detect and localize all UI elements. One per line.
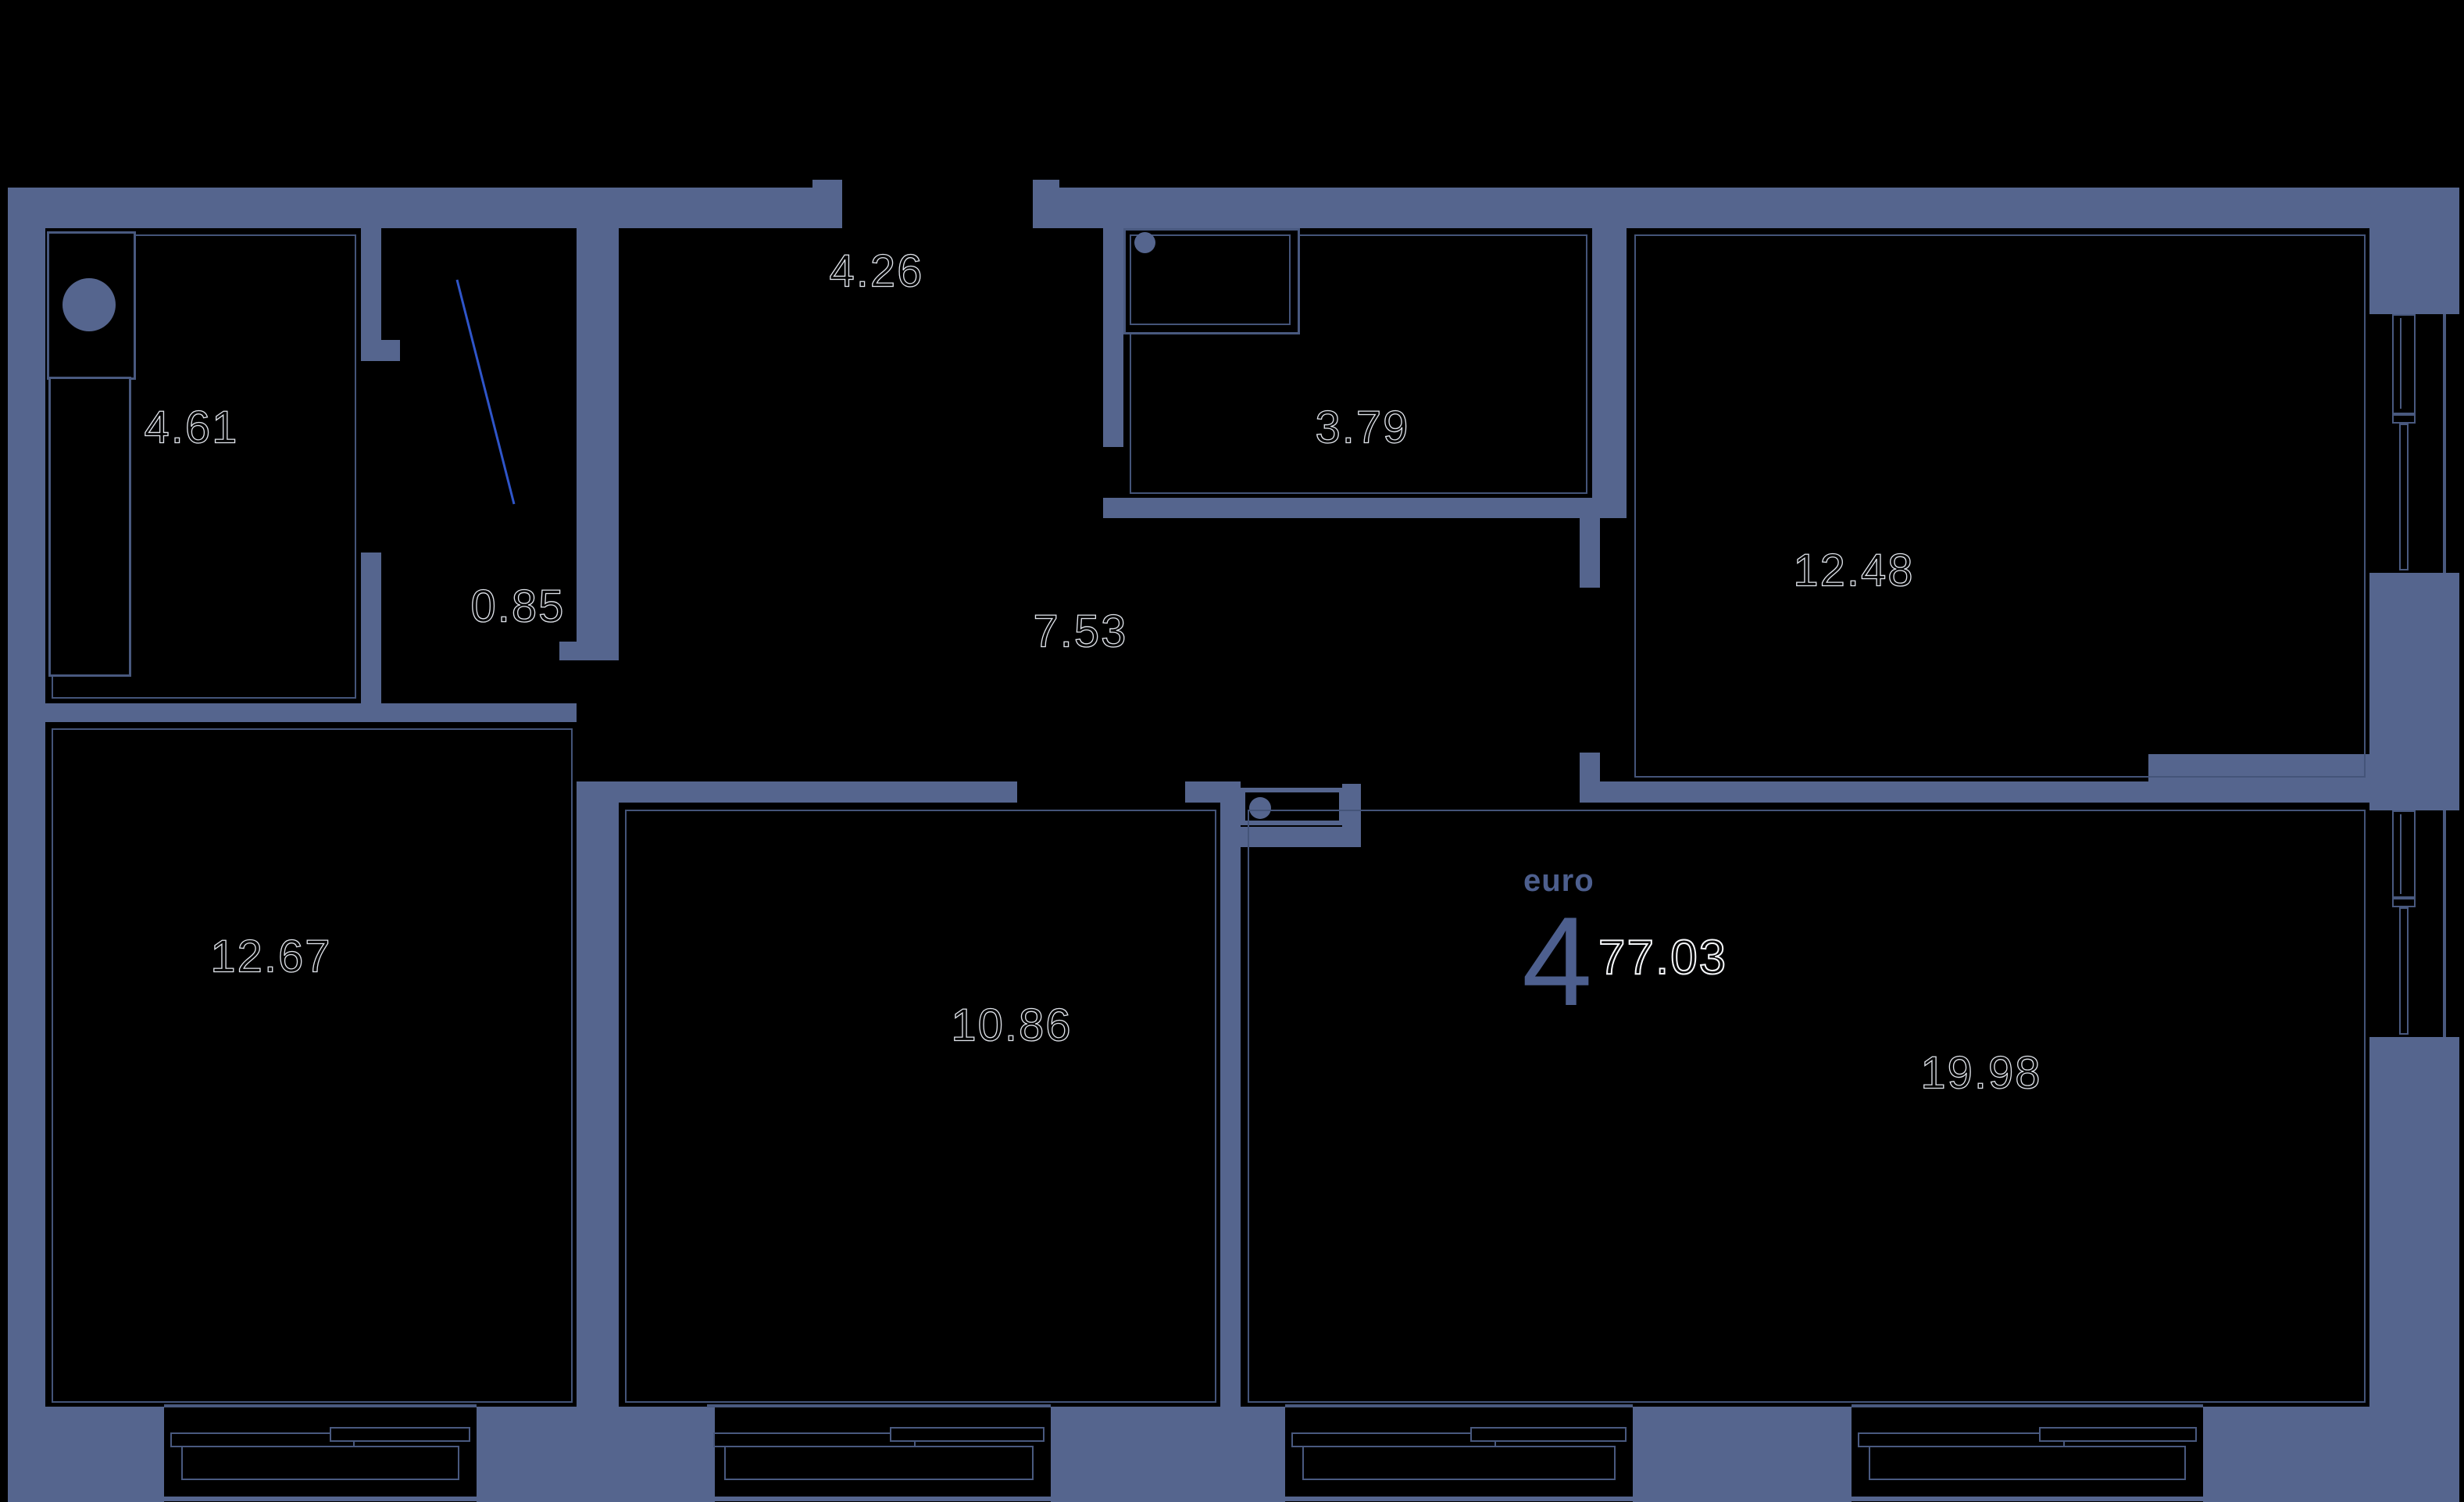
- wall-face-line: [707, 1404, 1051, 1407]
- wall-segment: [812, 180, 842, 189]
- window-right-upper: [2387, 314, 2450, 573]
- window-sash: [330, 1427, 470, 1442]
- wall-segment: [1033, 188, 2459, 228]
- window-glass-line: [2399, 907, 2409, 1035]
- room-area-label-bedroom-3: 10.86: [951, 1000, 1072, 1052]
- wall-segment: [1103, 228, 1123, 447]
- room-area-label-bathroom: 4.61: [145, 402, 239, 454]
- room-area-label-bedroom: 12.48: [1793, 545, 1914, 597]
- wall-segment: [1580, 518, 1600, 588]
- room-outline-bedroom: [1634, 234, 2366, 778]
- wall-segment: [361, 228, 381, 361]
- room-area-label-niche: 4.26: [830, 245, 924, 298]
- wall-segment: [1592, 228, 1627, 518]
- window-glass-line: [2400, 814, 2402, 894]
- window-glass-line: [2399, 424, 2409, 570]
- window-sash: [890, 1427, 1045, 1442]
- room-area-label-closet: 0.85: [471, 581, 566, 633]
- wall-segment: [2369, 188, 2459, 314]
- wall-face-line: [1285, 1404, 1633, 1407]
- window-sill: [724, 1446, 1034, 1480]
- room-area-label-bedroom-2: 12.67: [210, 931, 331, 983]
- wall-segment: [577, 781, 619, 1407]
- window-bottom-2: [707, 1404, 1051, 1502]
- window-sash: [2392, 413, 2416, 424]
- wall-segment: [8, 1407, 164, 1502]
- wall-segment: [1051, 1407, 1285, 1502]
- room-area-label-hallway: 7.53: [1034, 606, 1128, 658]
- wall-segment: [577, 781, 1017, 803]
- window-bottom-4: [1852, 1404, 2203, 1502]
- window-sash: [1470, 1427, 1627, 1442]
- window-sill: [181, 1446, 459, 1480]
- wall-segment: [559, 642, 577, 660]
- sink-basin-icon: [1134, 232, 1155, 253]
- window-sill: [1302, 1446, 1616, 1480]
- floor-plan: 4.61 4.26 3.79 12.48 0.85 7.53 12.67 10.…: [0, 0, 2464, 1502]
- wall-segment: [8, 188, 842, 228]
- room-outline-bedroom-3: [625, 810, 1216, 1403]
- window-right-lower: [2387, 810, 2450, 1037]
- room-outline-living-kitchen: [1248, 810, 2366, 1403]
- window-glass-line: [2400, 318, 2402, 409]
- window-bottom-3: [1285, 1404, 1633, 1502]
- wall-segment: [1185, 781, 1223, 803]
- room-area-label-bathroom-2: 3.79: [1316, 402, 1410, 454]
- window-sill: [1869, 1446, 2186, 1480]
- room-outline-bedroom-2: [52, 728, 573, 1403]
- apartment-total-area: 77.03: [1598, 930, 1727, 985]
- wall-segment: [1580, 753, 1600, 784]
- wall-segment: [361, 553, 381, 705]
- wall-face-line: [164, 1404, 477, 1407]
- bathroom-cabinet: [48, 377, 131, 677]
- washing-machine-circle-icon: [62, 278, 116, 331]
- wall-segment: [1033, 180, 1059, 189]
- window-sash: [2392, 896, 2416, 907]
- window-sash: [2039, 1427, 2197, 1442]
- room-area-label-living-kitchen: 19.98: [1920, 1047, 2041, 1100]
- wall-segment: [2369, 573, 2459, 810]
- window-bottom-1: [164, 1404, 477, 1502]
- wall-segment: [1103, 498, 1627, 518]
- wall-segment: [1220, 781, 1241, 1407]
- wall-face-line: [2443, 810, 2446, 1037]
- wall-face-line: [2443, 314, 2446, 573]
- wall-segment: [2369, 1037, 2459, 1454]
- wall-segment: [381, 340, 400, 361]
- wall-face-line: [1852, 1404, 2203, 1407]
- apartment-rooms-count: 4: [1522, 899, 1592, 1025]
- window-sash: [2392, 314, 2416, 416]
- wall-segment: [477, 1407, 715, 1502]
- door-swing-line: [457, 280, 514, 504]
- wall-segment: [1633, 1407, 1852, 1502]
- wall-segment: [37, 703, 577, 722]
- wall-segment: [8, 188, 45, 1454]
- window-sash: [2392, 810, 2416, 899]
- wall-segment: [577, 228, 619, 660]
- wall-segment: [2203, 1407, 2459, 1502]
